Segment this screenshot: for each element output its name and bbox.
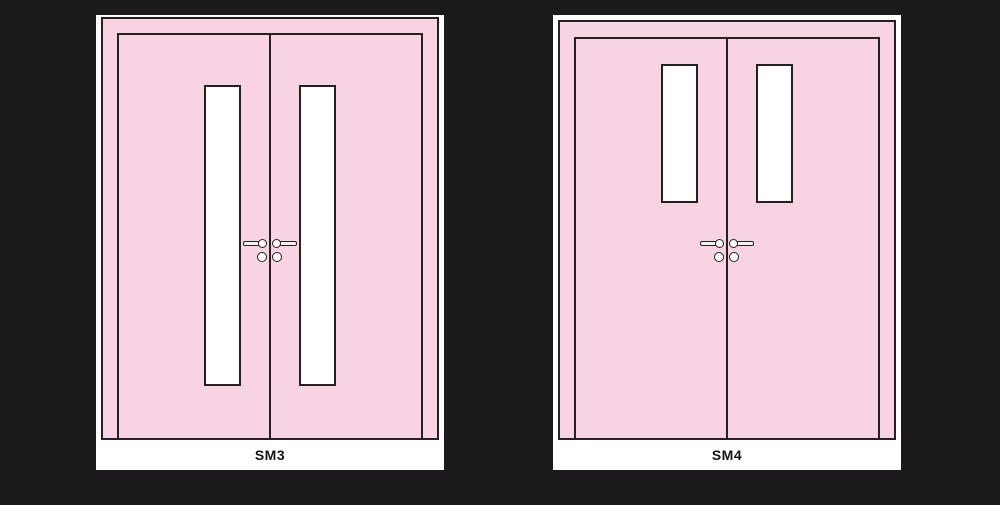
door-leaves: [117, 33, 423, 440]
label-band: SM4: [553, 440, 901, 470]
door-unit-sm4: SM4: [553, 15, 901, 470]
vision-panel-right: [756, 64, 793, 203]
drawing-canvas: SM3 SM4: [0, 0, 1000, 505]
door-label: SM3: [255, 447, 285, 463]
label-band: SM3: [96, 440, 444, 470]
door-leaves: [574, 37, 880, 440]
meeting-stile: [726, 39, 728, 438]
vision-panel-right: [299, 85, 336, 386]
door-label: SM4: [712, 447, 742, 463]
vision-panel-left: [204, 85, 241, 386]
vision-panel-left: [661, 64, 698, 203]
door-unit-sm3: SM3: [96, 15, 444, 470]
meeting-stile: [269, 35, 271, 438]
